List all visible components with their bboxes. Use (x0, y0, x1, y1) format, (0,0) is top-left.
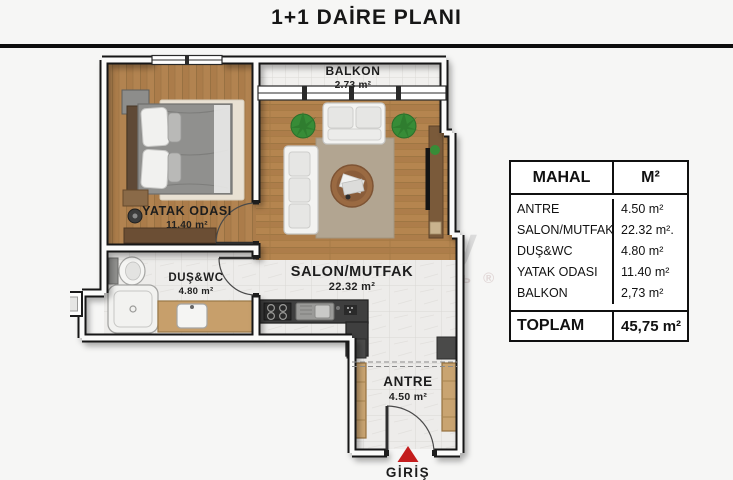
bathroom-label: DUŞ&WC (168, 272, 223, 284)
sofa-seat (328, 129, 381, 140)
faucet (336, 306, 340, 310)
table-row: SALON/MUTFAK 22.32 m². (511, 220, 687, 241)
sofa-cushion (289, 152, 310, 176)
sofa-cushion (289, 204, 310, 228)
sofa-cushion (328, 107, 353, 128)
pillow (141, 107, 170, 147)
row-area: 22.32 m². (614, 220, 687, 241)
pillow (141, 149, 170, 189)
shower-tray (108, 285, 158, 333)
row-area: 2,73 m² (614, 283, 687, 304)
floor-lamp-top (133, 214, 138, 219)
livingroom-label: SALON/MUTFAK (291, 264, 413, 280)
row-room: DUŞ&WC (511, 241, 614, 262)
floor-plan: BALKON 2.73 m² YATAK ODASI 11.40 m² SALO… (70, 50, 510, 480)
table-row: ANTRE 4.50 m² (511, 199, 687, 220)
area-table-header: MAHAL M² (511, 162, 687, 195)
tv-unit-plant (430, 145, 440, 155)
sofa-cushion (356, 107, 381, 128)
table-row: DUŞ&WC 4.80 m² (511, 241, 687, 262)
area-table-body: ANTRE 4.50 m² SALON/MUTFAK 22.32 m². DUŞ… (511, 195, 687, 310)
row-area: 4.80 m² (614, 241, 687, 262)
entrance-label: GİRİŞ (386, 465, 430, 480)
small-appliance (344, 305, 357, 315)
livingroom-area: 22.32 m² (329, 281, 375, 293)
area-table-total: TOPLAM 45,75 m² (511, 310, 687, 340)
header-area: M² (614, 162, 687, 193)
balcony-area: 2.73 m² (335, 80, 372, 91)
balcony-label: BALKON (326, 64, 381, 78)
table-decor (346, 195, 351, 200)
bathroom-faucet (190, 305, 194, 309)
title-divider (0, 44, 733, 48)
tv-screen (426, 148, 431, 210)
row-room: ANTRE (511, 199, 614, 220)
bed-headboard (127, 106, 138, 192)
bedroom-label: YATAK ODASI (142, 204, 232, 218)
row-room: SALON/MUTFAK (511, 220, 614, 241)
table-row: BALKON 2,73 m² (511, 283, 687, 304)
header-room: MAHAL (511, 162, 614, 193)
sofa-cushion (289, 178, 310, 202)
total-label: TOPLAM (511, 312, 614, 340)
toilet-bowl (126, 262, 141, 280)
entry-area: 4.50 m² (389, 391, 427, 403)
row-area: 11.40 m² (614, 262, 687, 283)
bed-throw (214, 105, 230, 193)
row-area: 4.50 m² (614, 199, 687, 220)
area-table: MAHAL M² ANTRE 4.50 m² SALON/MUTFAK 22.3… (509, 160, 689, 342)
bathroom-area: 4.80 m² (179, 286, 214, 297)
row-room: YATAK ODASI (511, 262, 614, 283)
tv-unit (429, 126, 443, 238)
bedroom-area: 11.40 m² (166, 220, 208, 231)
pillow-small (168, 113, 181, 142)
floor-plan-svg: BALKON 2.73 m² YATAK ODASI 11.40 m² SALO… (70, 50, 510, 480)
page-title: 1+1 DAİRE PLANI (0, 6, 733, 30)
pillow-small (168, 153, 181, 182)
row-room: BALKON (511, 283, 614, 304)
total-value: 45,75 m² (614, 312, 687, 340)
tv-unit-decor (430, 222, 441, 234)
table-row: YATAK ODASI 11.40 m² (511, 262, 687, 283)
toilet-tank (109, 258, 118, 284)
sink-bowl (315, 305, 330, 318)
entry-label: ANTRE (383, 374, 433, 389)
